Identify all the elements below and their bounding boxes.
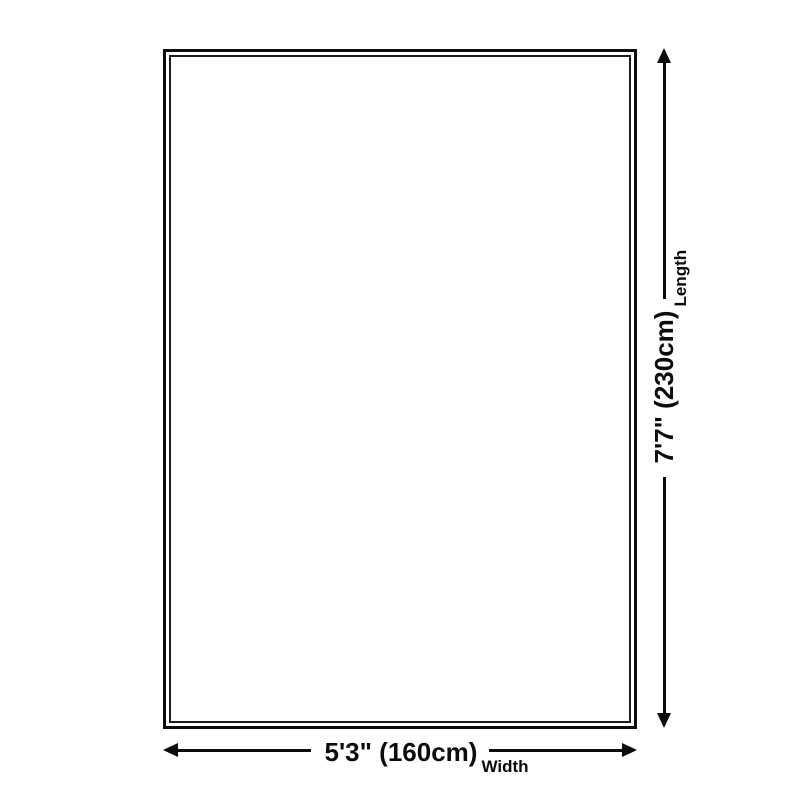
arrow-down-icon xyxy=(657,713,671,728)
width-label: Width xyxy=(481,758,528,775)
length-dimension-arrow: 7'7" (230cm) Length xyxy=(642,48,686,728)
width-dimension-arrow: 5'3" (160cm) Width xyxy=(163,728,637,772)
length-label: Length xyxy=(672,250,689,307)
length-dimension-line-start xyxy=(663,477,666,713)
length-dimension-line-end: Length xyxy=(663,63,666,299)
arrow-right-icon xyxy=(622,743,637,757)
rug-outline xyxy=(163,49,637,729)
arrow-left-icon xyxy=(163,743,178,757)
arrow-up-icon xyxy=(657,48,671,63)
width-dimension-line-start xyxy=(178,749,311,752)
width-dimension-line-end: Width xyxy=(489,749,622,752)
length-dimension-row: 7'7" (230cm) Length xyxy=(642,48,686,728)
length-value: 7'7" (230cm) xyxy=(651,311,677,464)
width-value: 5'3" (160cm) xyxy=(325,739,478,765)
rug-dimension-diagram: 5'3" (160cm) Width 7'7" (230cm) Length xyxy=(0,0,800,800)
rug-inner-border xyxy=(169,55,631,723)
